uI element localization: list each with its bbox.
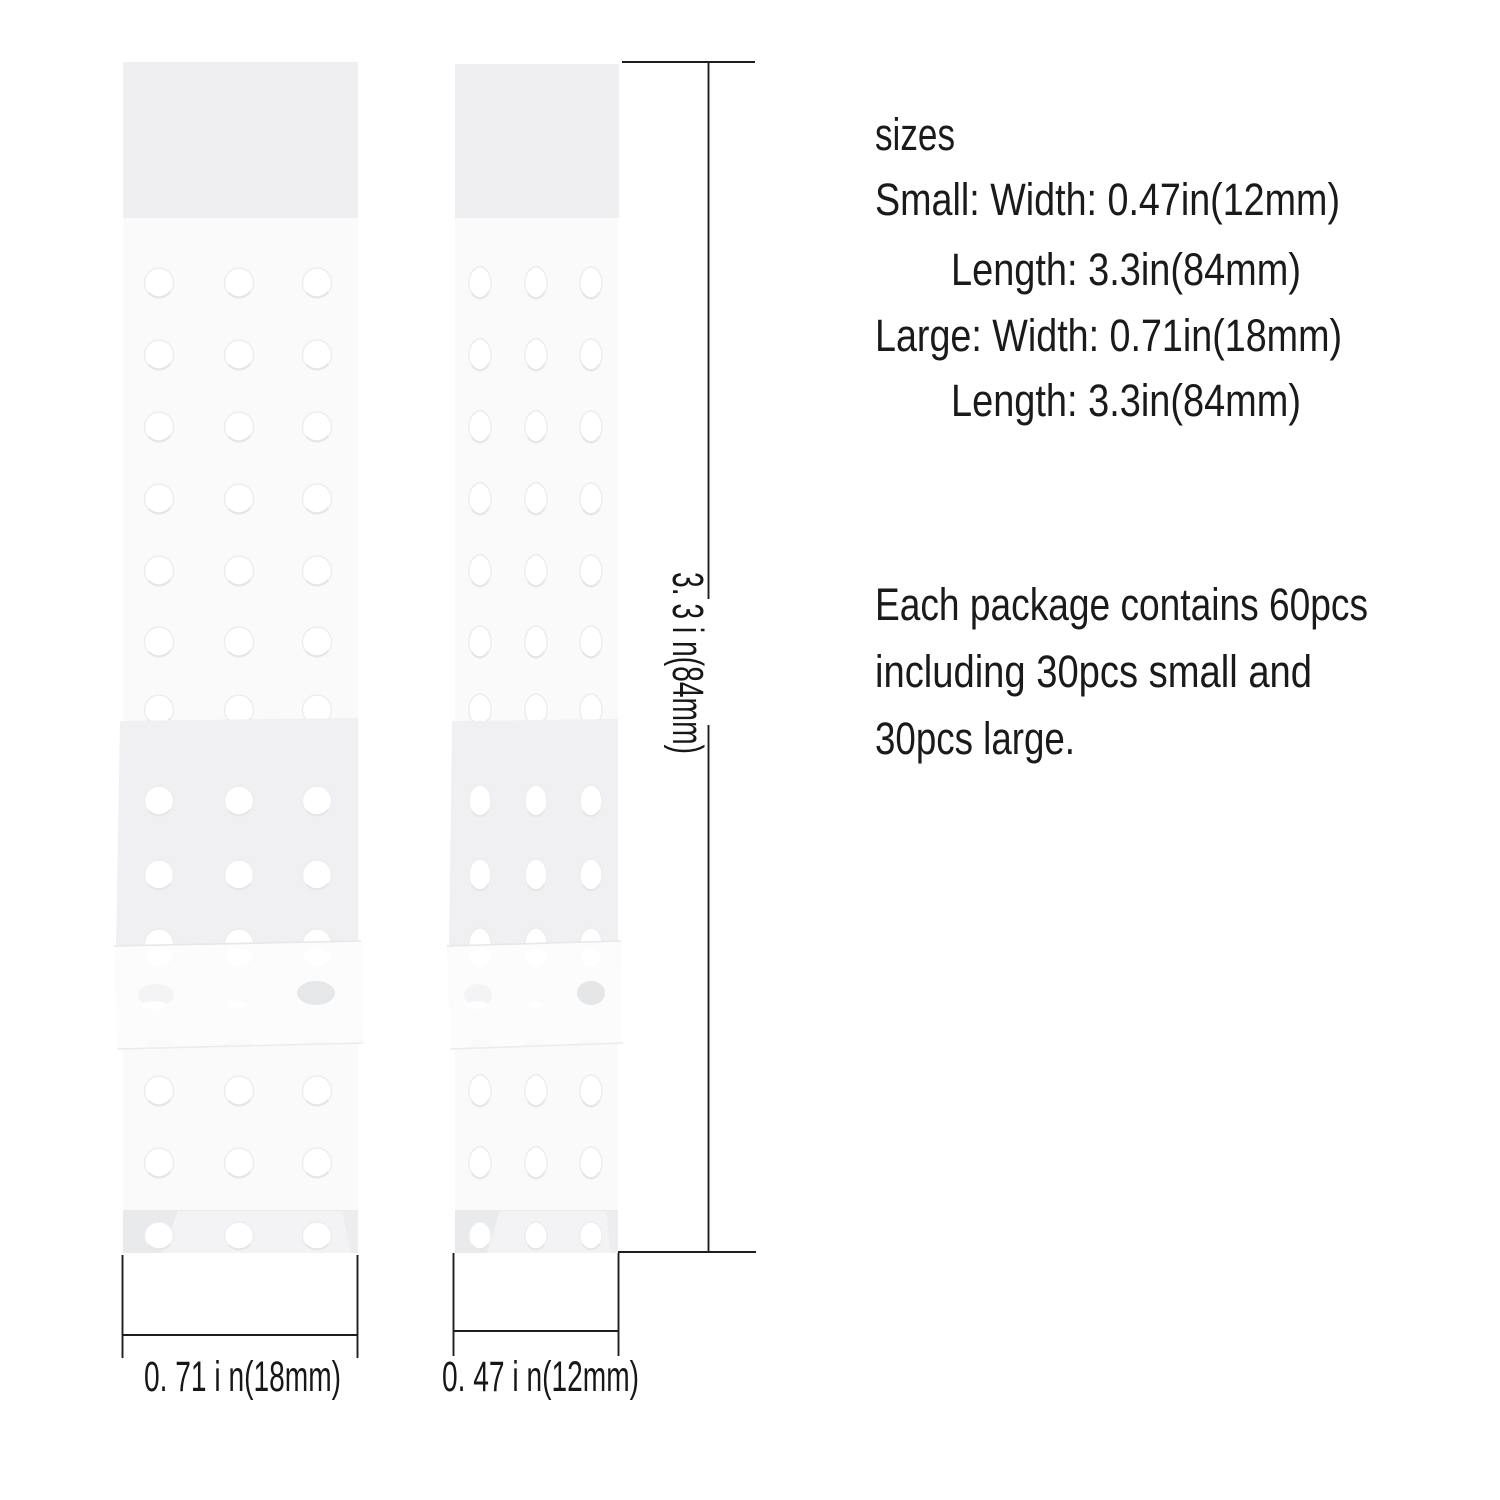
svg-text:3. 3 i n(84mm): 3. 3 i n(84mm): [663, 572, 712, 754]
svg-text:Large: Width: 0.71in(18mm): Large: Width: 0.71in(18mm): [875, 310, 1342, 361]
svg-text:including 30pcs small and: including 30pcs small and: [875, 646, 1312, 697]
svg-text:Small: Width: 0.47in(12mm): Small: Width: 0.47in(12mm): [875, 174, 1340, 225]
svg-text:Length: 3.3in(84mm): Length: 3.3in(84mm): [951, 375, 1301, 426]
svg-text:Length: 3.3in(84mm): Length: 3.3in(84mm): [951, 244, 1301, 295]
svg-text:0. 71 i n(18mm): 0. 71 i n(18mm): [144, 1353, 341, 1401]
svg-text:0. 47 i n(12mm): 0. 47 i n(12mm): [442, 1353, 639, 1401]
svg-text:sizes: sizes: [875, 109, 955, 160]
svg-text:Each package contains 60pcs: Each package contains 60pcs: [875, 579, 1368, 630]
svg-text:30pcs large.: 30pcs large.: [875, 713, 1075, 764]
